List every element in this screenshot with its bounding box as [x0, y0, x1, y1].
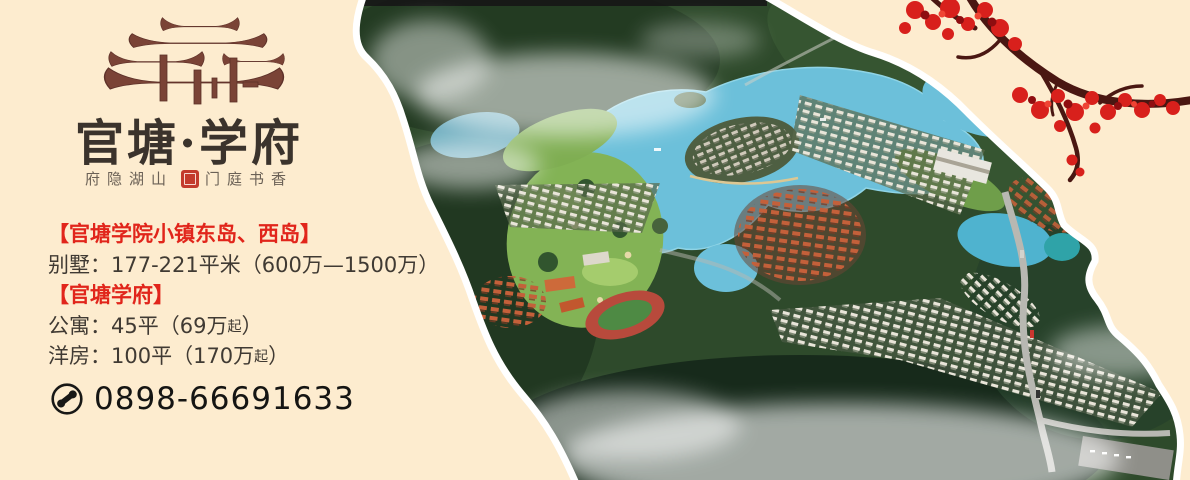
plum-blossom-icon — [860, 0, 1190, 195]
listing-villa: 别墅：177-221平米（600万—1500万） — [48, 249, 439, 280]
tagline-left: 府隐湖山 — [85, 168, 173, 189]
listing-heading-east-west-island: 【官塘学院小镇东岛、西岛】 — [48, 218, 439, 249]
promo-banner: 官塘·学府 府隐湖山 门庭书香 【官塘学院小镇东岛、西岛】 别墅：177-221… — [0, 0, 1190, 480]
brand-title: 官塘·学府 — [0, 104, 378, 175]
listing-flat: 洋房：100平（170万起） — [48, 340, 439, 371]
phone-icon — [50, 382, 84, 416]
tagline-right: 门庭书香 — [205, 168, 293, 189]
listing-heading-xuefu: 【官塘学府】 — [48, 279, 439, 310]
brand-roof-logo-icon — [98, 12, 290, 108]
phone-row: 0898-66691633 — [50, 381, 355, 417]
brand-tagline: 府隐湖山 门庭书香 — [0, 168, 378, 189]
listing-apartment: 公寓：45平（69万起） — [48, 310, 439, 341]
phone-number: 0898-66691633 — [94, 381, 355, 417]
listings: 【官塘学院小镇东岛、西岛】 别墅：177-221平米（600万—1500万） 【… — [48, 218, 439, 371]
seal-icon — [181, 170, 199, 188]
info-panel: 官塘·学府 府隐湖山 门庭书香 【官塘学院小镇东岛、西岛】 别墅：177-221… — [0, 0, 430, 480]
